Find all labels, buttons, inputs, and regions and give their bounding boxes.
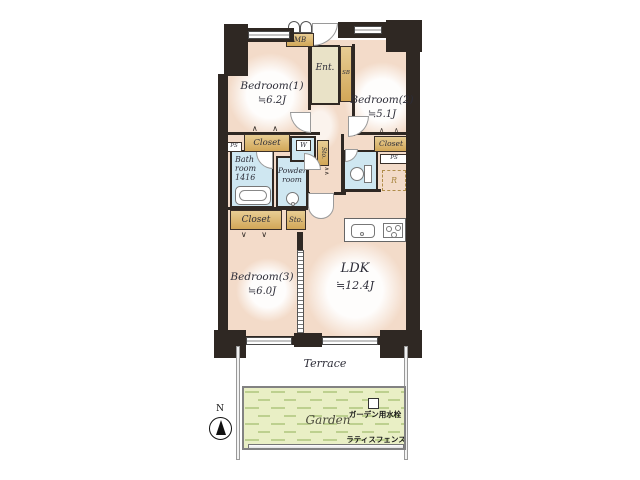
bifold-door-icon-washer: ∧∧ (323, 161, 329, 181)
bathtub (235, 186, 271, 205)
washer-label: W (300, 142, 307, 149)
pipe-space-left: PS (226, 142, 242, 152)
toilet-bowl (350, 167, 364, 181)
stove-burner-1 (386, 226, 392, 232)
closet-bedroom3-label: Closet (242, 216, 271, 225)
kitchen-sink-drain (360, 232, 364, 236)
pipe-space-left-label: PS (230, 144, 237, 150)
garden-area: Garden ガーデン用水栓 ラティスフェンス (242, 386, 406, 450)
kitchen-sink (351, 224, 375, 238)
bath-room-label: Bath room 1416 (235, 155, 256, 183)
bedroom1-size: ≒6.2J (234, 95, 310, 106)
terrace-label: Terrace (280, 358, 370, 370)
ldk-name: LDK (323, 262, 387, 276)
window-bedroom3-terrace (246, 337, 292, 345)
stove-burner-2 (395, 225, 401, 231)
shoe-box-label: SB (342, 71, 350, 77)
floorplan-canvas: SB Ent. MB Bath room 1416 Powder room W (0, 0, 640, 480)
closet-bedroom1: Closet (244, 134, 290, 152)
wall-hall-ldk-right (334, 192, 346, 195)
stove-burner-3 (391, 232, 397, 238)
kitchen-counter (344, 218, 406, 242)
pipe-space-right: PS (380, 154, 408, 164)
meter-box-label: MB (294, 37, 306, 44)
bedroom2-name: Bedroom(2) (346, 95, 418, 107)
toilet-tank (364, 165, 372, 183)
lattice-fence (248, 444, 404, 450)
bedroom2-size: ≒5.1J (346, 109, 418, 120)
bedroom3-size: ≒6.0J (226, 286, 298, 297)
storage-bedroom3-label: Sto. (289, 217, 303, 224)
wall-corner-topright (386, 20, 422, 52)
window-bedroom1-top (248, 31, 290, 39)
storage-hall-label: Sto. (320, 147, 326, 159)
folding-door-icon-b2closet: ∧ ∧ (376, 127, 406, 134)
folding-door-icon-b1closet: ∧ ∧ (248, 125, 288, 133)
window-ldk-terrace (322, 337, 378, 345)
compass-needle (216, 420, 226, 435)
closet-bedroom3: Closet (230, 210, 282, 230)
closet-bedroom2-label: Closet (379, 140, 403, 148)
refrigerator-label: R (391, 176, 397, 185)
garden-water-tap (368, 398, 379, 409)
bathtub-inner (239, 190, 267, 201)
lattice-fence-label: ラティスフェンス (346, 436, 406, 444)
window-bedroom2-top (354, 26, 382, 34)
bedroom3-name: Bedroom(3) (226, 272, 298, 284)
closet-bedroom2: Closet (374, 136, 408, 152)
entrance-label: Ent. (310, 64, 340, 74)
refrigerator-space: R (382, 170, 406, 191)
powder-sink-faucet (291, 202, 295, 206)
washer-label-box: W (296, 140, 311, 151)
garden-water-tap-label: ガーデン用水栓 (344, 411, 406, 419)
wall-bottom-center-block (294, 333, 322, 347)
ldk-door-arc (308, 193, 334, 219)
bath-room: Bath room 1416 (230, 150, 274, 208)
meter-box-door-right (300, 21, 312, 33)
pipe-space-right-label: PS (390, 156, 397, 162)
compass-north-label: N (213, 405, 227, 415)
entrance-floor (310, 45, 340, 105)
wall-b3-top-stub (297, 232, 303, 252)
terrace-rail-left (236, 346, 240, 460)
closet-bedroom1-label: Closet (253, 139, 280, 148)
bath-door-arc (256, 152, 273, 169)
compass-icon (209, 417, 232, 440)
wall-right (406, 46, 420, 338)
sliding-door-bedroom3 (297, 250, 304, 334)
bedroom1-name: Bedroom(1) (234, 81, 310, 93)
powder-room-label: Powder room (278, 166, 306, 184)
folding-door-icon-b3closet: ∨ ∨ (234, 231, 280, 239)
kitchen-stove (383, 223, 403, 238)
ldk-size: ≒12.4J (323, 280, 387, 292)
storage-bedroom3: Sto. (286, 210, 306, 230)
